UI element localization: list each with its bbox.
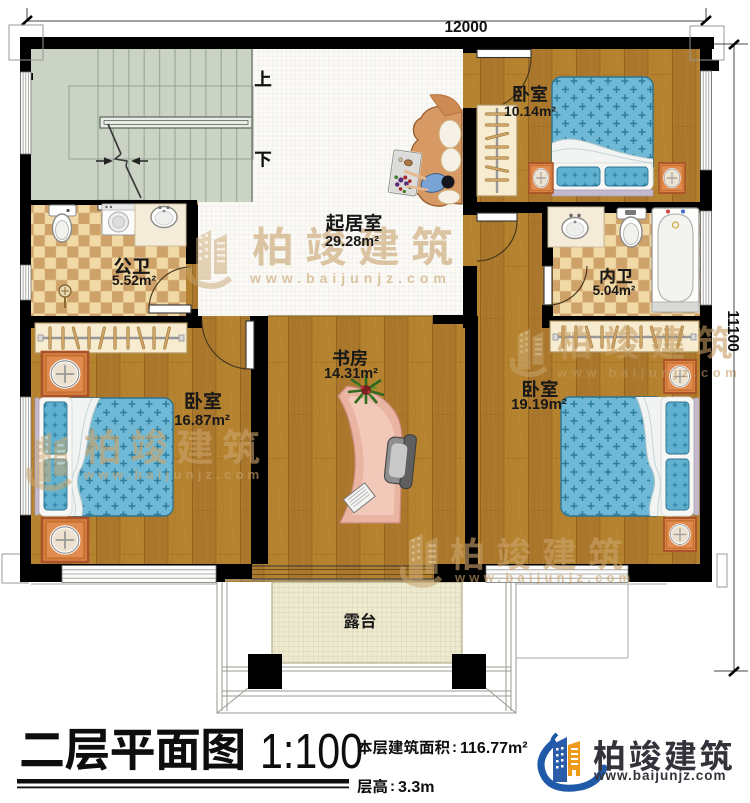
svg-text:10.14m²: 10.14m² [504,103,556,119]
svg-text:14.31m²: 14.31m² [324,366,378,382]
svg-text:12000: 12000 [444,19,487,36]
svg-text::: : [452,739,457,756]
svg-text:11100: 11100 [724,310,741,351]
svg-text:29.28m²: 29.28m² [325,234,379,250]
svg-text::: : [390,778,395,795]
svg-text:www.baijunjz.com: www.baijunjz.com [249,270,451,286]
svg-text:116.77m²: 116.77m² [460,740,528,757]
svg-text:5.52m²: 5.52m² [112,272,157,288]
svg-text:19.19m²: 19.19m² [511,396,567,413]
svg-text:3.3m: 3.3m [398,779,434,796]
svg-text:www.baijunjz.com: www.baijunjz.com [593,768,727,783]
svg-text:1:100: 1:100 [260,724,363,779]
svg-text:16.87m²: 16.87m² [174,412,230,429]
svg-text:www.baijunjz.com: www.baijunjz.com [454,570,634,585]
svg-text:5.04m²: 5.04m² [593,283,636,298]
svg-text:www.baijunjz.com: www.baijunjz.com [556,365,741,380]
svg-text:www.baijunjz.com: www.baijunjz.com [83,467,263,482]
